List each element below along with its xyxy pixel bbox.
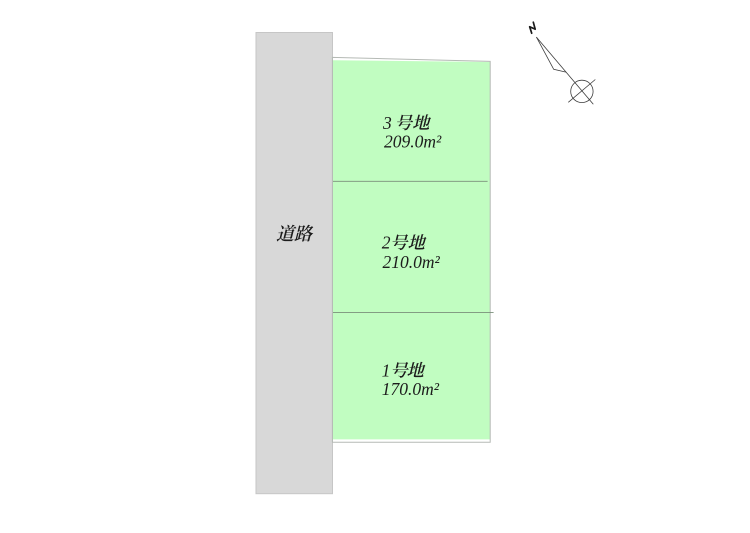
svg-text:210.0m²: 210.0m² [383, 252, 441, 272]
svg-text:3: 3 [382, 113, 392, 133]
svg-text:1: 1 [382, 360, 391, 380]
svg-text:209.0m²: 209.0m² [384, 131, 442, 151]
svg-text:2: 2 [382, 233, 391, 253]
svg-text:170.0m²: 170.0m² [382, 379, 440, 399]
